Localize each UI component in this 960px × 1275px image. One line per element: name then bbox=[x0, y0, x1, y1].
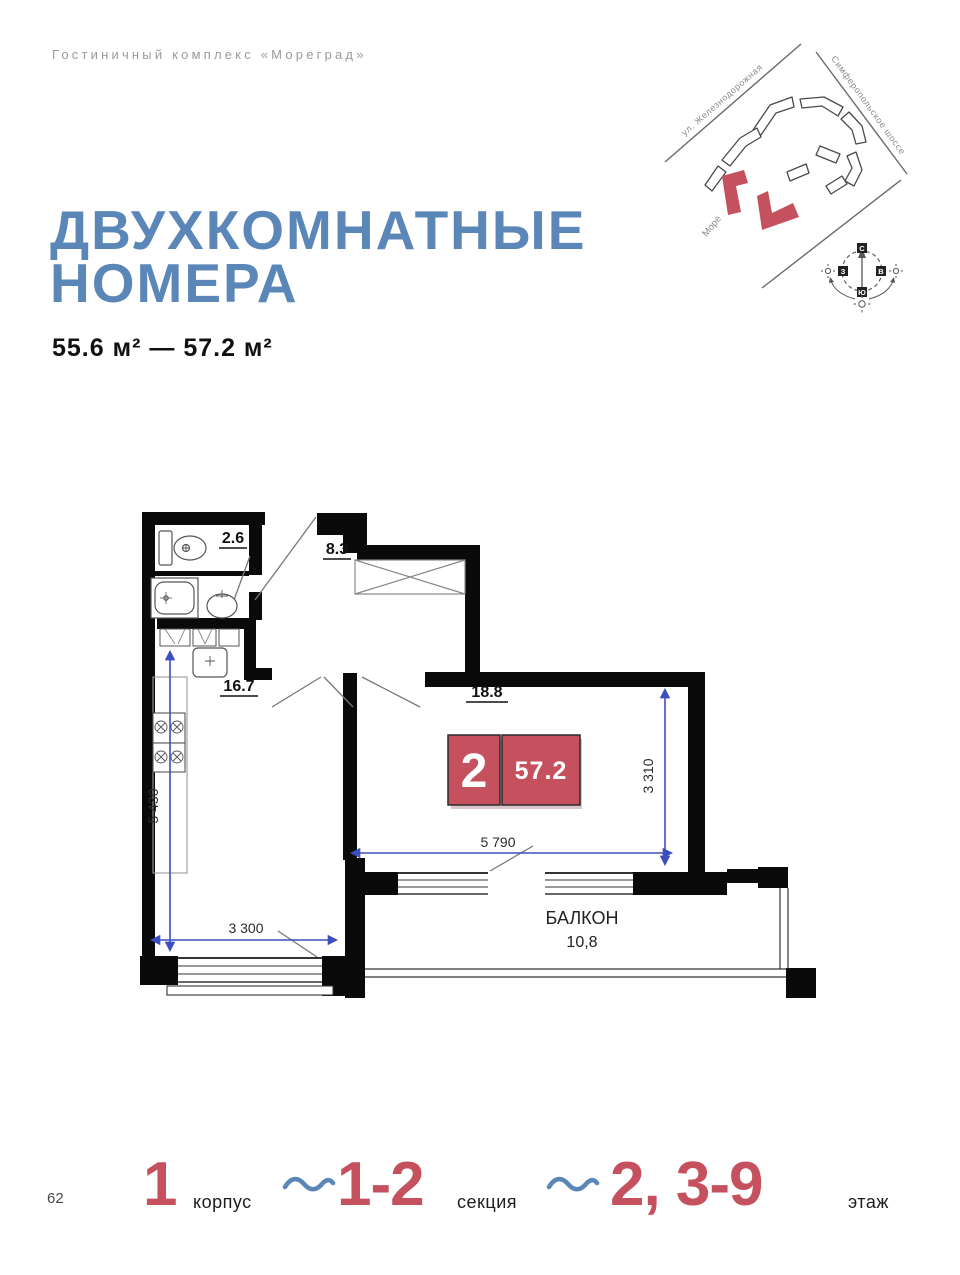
wc-area-label: 2.6 bbox=[222, 530, 244, 547]
site-map: ул. Железнодорожная Симферопольское шосс… bbox=[640, 28, 940, 328]
kitchen-window bbox=[167, 958, 333, 995]
brochure-page: Гостиничный комплекс «Мореград» ул. Желе… bbox=[0, 0, 960, 1275]
compass: С Ю З В bbox=[821, 243, 903, 313]
wave-divider-icon bbox=[546, 1174, 600, 1196]
page-title-line1: ДВУХКОМНАТНЫЕ bbox=[50, 204, 586, 257]
street-left-label: ул. Железнодорожная bbox=[680, 62, 765, 138]
dim-bedroom-width: 5 790 bbox=[480, 834, 515, 850]
badge-total-area: 57.2 bbox=[515, 757, 568, 785]
balcony-edge bbox=[365, 888, 788, 977]
stove-icon bbox=[153, 713, 185, 772]
korpus-label: корпус bbox=[193, 1192, 252, 1213]
balcony-label: БАЛКОН bbox=[546, 908, 619, 928]
balcony-window-right bbox=[545, 873, 633, 894]
kitchen-sink-icon bbox=[193, 648, 227, 677]
page-title-line2: НОМЕРА bbox=[50, 257, 586, 310]
vanity-cabinets bbox=[160, 629, 239, 646]
unit-badge: 2 57.2 bbox=[448, 735, 582, 809]
floor-label: этаж bbox=[848, 1192, 889, 1213]
section-value: 1-2 bbox=[337, 1157, 424, 1213]
bedroom-area-label: 18.8 bbox=[471, 684, 502, 701]
wave-divider-icon bbox=[282, 1174, 336, 1196]
dim-left-height: 5 430 bbox=[145, 788, 161, 823]
svg-text:С: С bbox=[859, 244, 865, 253]
highlighted-buildings bbox=[722, 170, 799, 230]
kitchen-area-label: 16.7 bbox=[223, 678, 254, 695]
dim-left-width: 3 300 bbox=[228, 920, 263, 936]
balcony-label-group: БАЛКОН 10,8 bbox=[546, 908, 619, 951]
floor-plan: 5 430 3 300 5 790 3 310 2.6 8.3 16.7 18.… bbox=[140, 495, 830, 1010]
dim-bedroom-height: 3 310 bbox=[640, 758, 656, 793]
page-number: 62 bbox=[47, 1190, 64, 1207]
brand-line: Гостиничный комплекс «Мореград» bbox=[52, 47, 367, 62]
floor-value: 2, 3-9 bbox=[610, 1157, 763, 1213]
bathtub-icon bbox=[151, 578, 198, 618]
hall-area-label: 8.3 bbox=[326, 541, 348, 558]
korpus-value: 1 bbox=[143, 1157, 176, 1213]
toilet-icon bbox=[159, 531, 206, 565]
badge-room-count: 2 bbox=[461, 745, 488, 798]
sea-label: Море bbox=[700, 214, 724, 239]
roads bbox=[665, 44, 907, 288]
wardrobe bbox=[355, 560, 465, 594]
page-title: ДВУХКОМНАТНЫЕ НОМЕРА bbox=[50, 204, 586, 310]
balcony-window-left bbox=[398, 873, 488, 894]
area-range: 55.6 м² — 57.2 м² bbox=[52, 334, 273, 363]
balcony-area-label: 10,8 bbox=[566, 934, 597, 951]
section-label: секция bbox=[457, 1192, 517, 1213]
svg-text:З: З bbox=[841, 267, 846, 276]
bath-sink-icon bbox=[207, 590, 237, 618]
svg-text:В: В bbox=[878, 267, 884, 276]
